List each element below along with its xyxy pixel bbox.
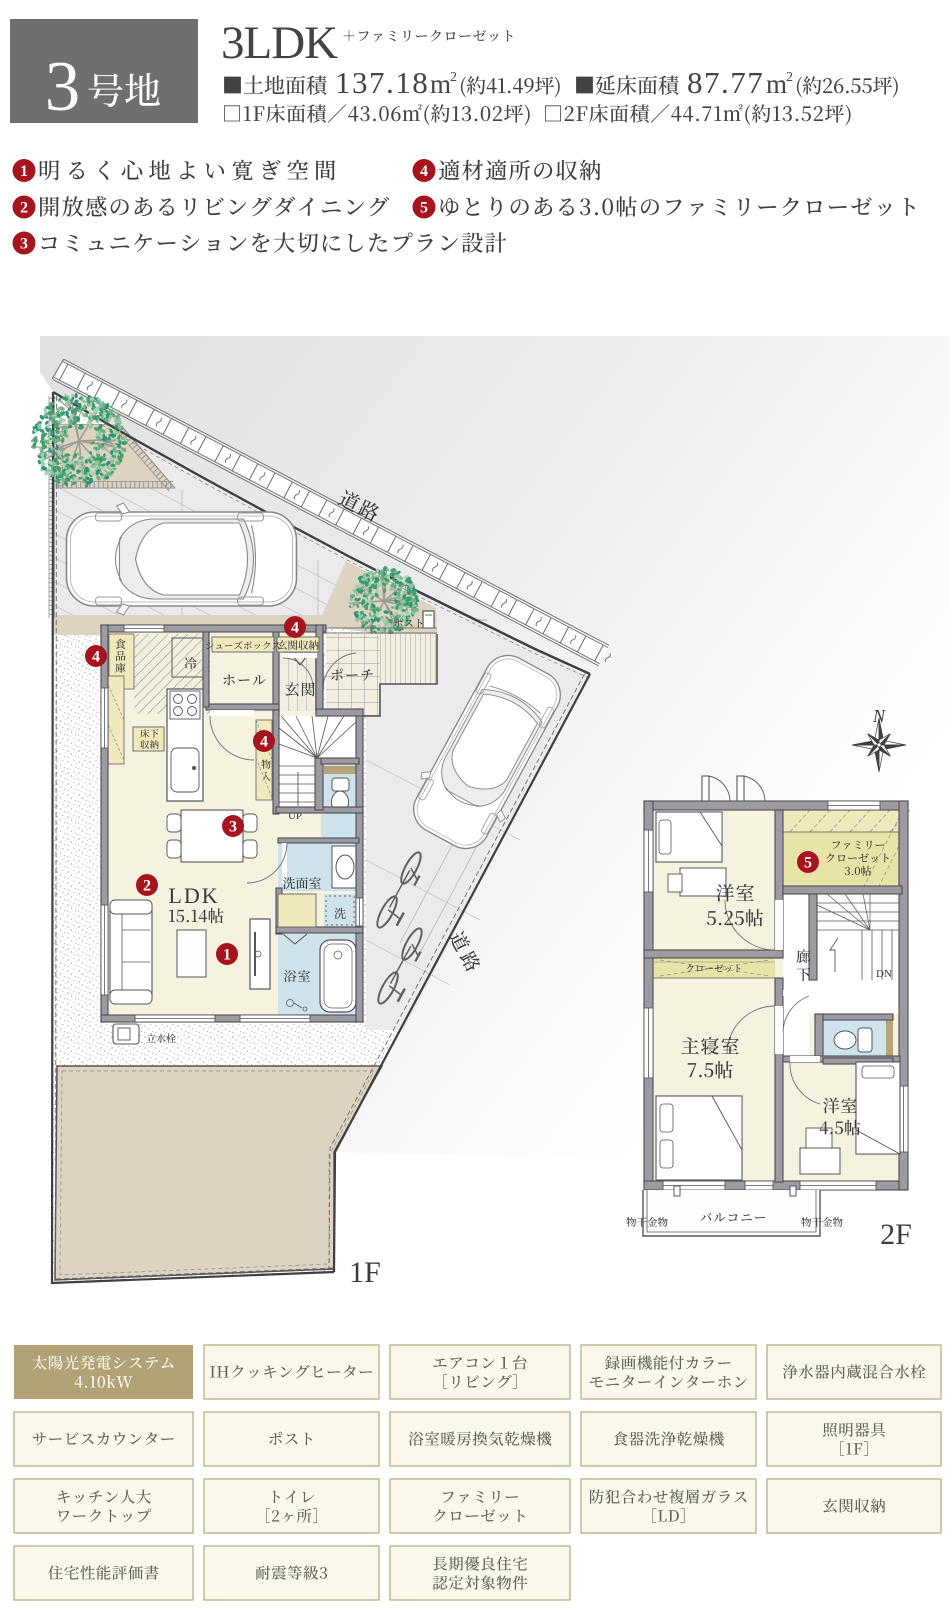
svg-text:1: 1 [223,947,231,964]
svg-text:4: 4 [291,620,299,637]
svg-text:5: 5 [804,855,812,872]
svg-text:2: 2 [450,70,457,85]
svg-text:87.77: 87.77 [687,65,764,100]
svg-text:5: 5 [420,200,428,217]
svg-text:137.18: 137.18 [335,65,429,100]
svg-text:1: 1 [20,163,28,180]
svg-text:m: m [430,69,451,99]
svg-text:LDK: LDK [168,883,219,908]
svg-text:3: 3 [229,819,237,836]
svg-text:3: 3 [20,236,28,253]
svg-text:3: 3 [45,48,81,126]
svg-text:4: 4 [92,649,100,666]
svg-text:4: 4 [420,163,428,180]
svg-text:1F: 1F [349,1256,381,1289]
svg-text:DN: DN [876,968,892,980]
svg-text:N: N [872,706,886,726]
svg-text:m: m [766,69,787,99]
svg-text:4: 4 [260,734,268,751]
svg-text:2: 2 [786,70,793,85]
svg-text:2F: 2F [880,1218,912,1251]
svg-text:3LDK: 3LDK [221,17,338,69]
svg-text:2: 2 [20,200,28,217]
svg-text:2: 2 [143,878,151,895]
